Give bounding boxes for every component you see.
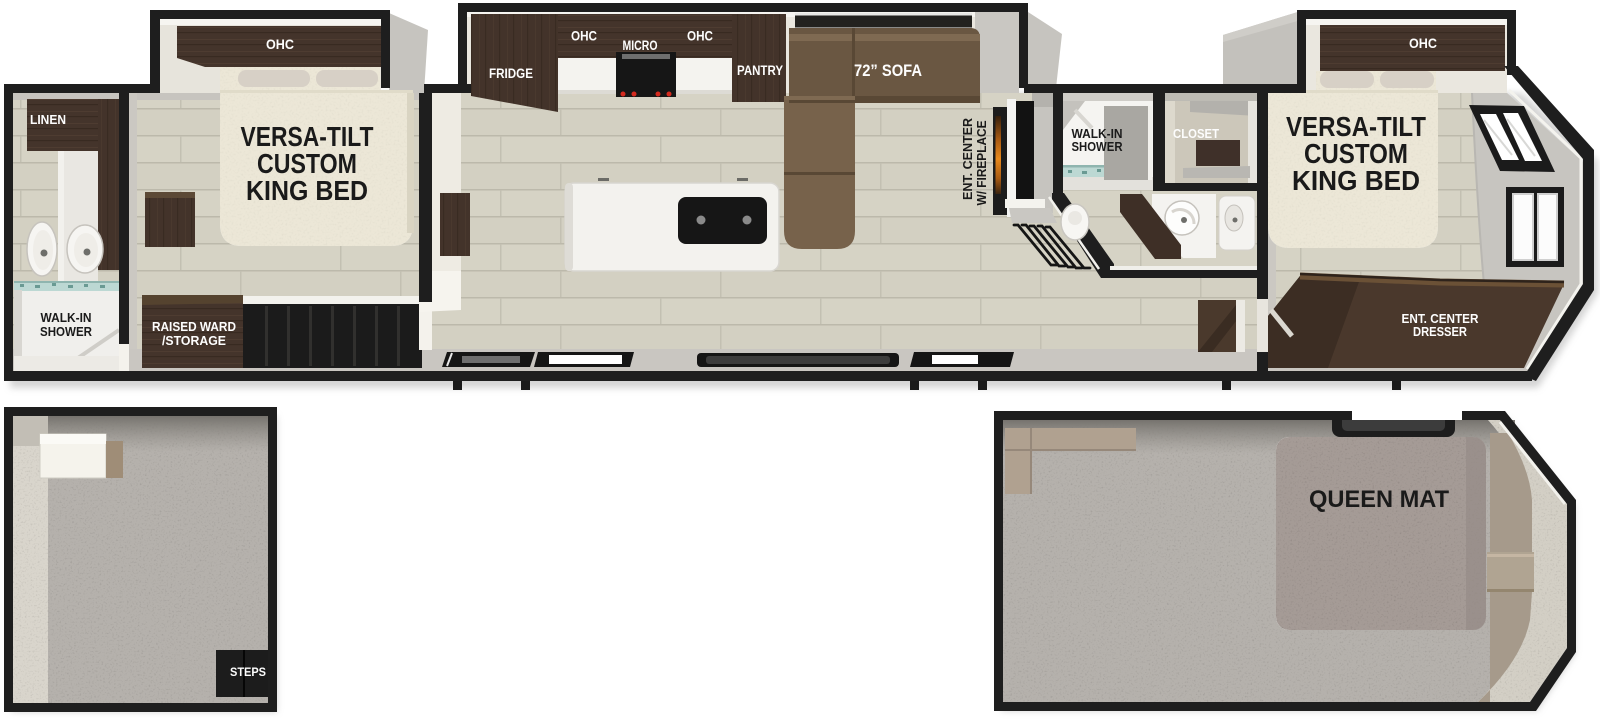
svg-text:OHC: OHC xyxy=(571,29,597,44)
svg-text:OHC: OHC xyxy=(687,29,713,44)
svg-text:W/ FIREPLACE: W/ FIREPLACE xyxy=(975,121,989,206)
svg-text:WALK-IN: WALK-IN xyxy=(1072,127,1123,141)
svg-text:QUEEN MAT: QUEEN MAT xyxy=(1309,486,1449,513)
svg-text:DRESSER: DRESSER xyxy=(1413,325,1467,339)
svg-text:SHOWER: SHOWER xyxy=(1072,140,1123,154)
svg-text:FRIDGE: FRIDGE xyxy=(489,66,533,81)
svg-text:ENT. CENTER: ENT. CENTER xyxy=(1402,312,1479,326)
svg-text:ENT. CENTER: ENT. CENTER xyxy=(961,118,975,200)
svg-text:STEPS: STEPS xyxy=(230,665,266,679)
svg-text:KING BED: KING BED xyxy=(1292,165,1420,196)
svg-text:MICRO: MICRO xyxy=(623,38,658,53)
svg-text:WALK-IN: WALK-IN xyxy=(41,311,92,325)
svg-text:OHC: OHC xyxy=(1409,36,1437,51)
svg-text:KING BED: KING BED xyxy=(246,175,368,206)
svg-text:PANTRY: PANTRY xyxy=(737,63,783,78)
svg-text:CLOSET: CLOSET xyxy=(1173,127,1219,141)
svg-text:RAISED WARD: RAISED WARD xyxy=(152,319,236,334)
svg-text:/STORAGE: /STORAGE xyxy=(162,333,226,348)
svg-text:SHOWER: SHOWER xyxy=(40,325,92,339)
svg-text:OHC: OHC xyxy=(266,37,294,52)
svg-text:72” SOFA: 72” SOFA xyxy=(854,62,922,80)
svg-text:LINEN: LINEN xyxy=(30,112,66,127)
